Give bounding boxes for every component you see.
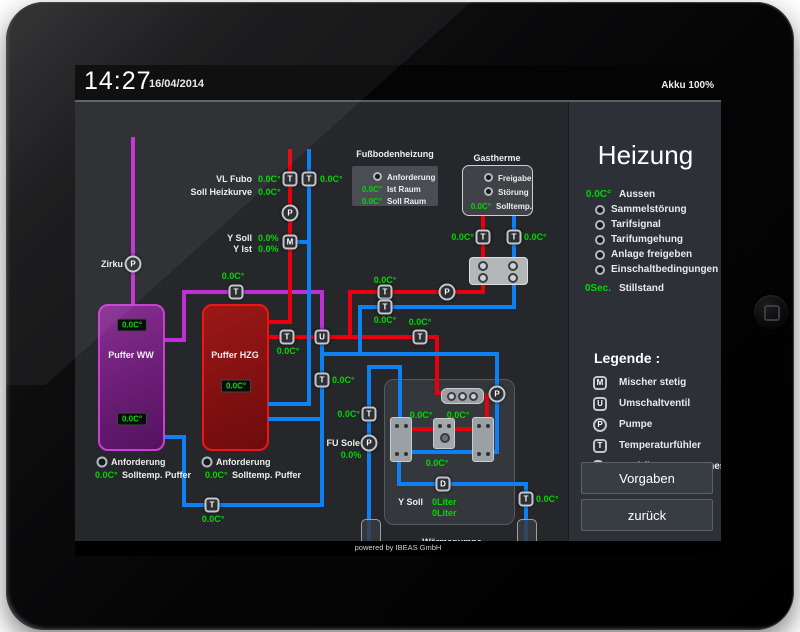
pipe-hzg-lower [268,417,324,421]
value-gastherme-return: 0.0C° [374,315,397,325]
temp-sensor-vl-fubo: T [283,172,298,187]
label-fu-sole: FU Sole [326,438,360,448]
status-led [595,250,605,260]
tank-puffer-hzg [202,304,269,451]
temp-sensor-hzg-out: T [280,330,295,345]
status-value: 0Sec. [581,283,611,294]
label-y-soll-wp: Y Soll [398,497,423,507]
legend-row: TTemperaturfühler [569,435,721,456]
status-led [595,235,605,245]
pipe-hzg-return [268,402,311,406]
status-label: Anlage freigeben [611,249,692,260]
pump-zirku: P [125,256,142,273]
legend-title: Legende : [594,350,660,366]
panel-row: 0.0C°Ist Raum [352,183,438,195]
value-sole: 0.0C° [337,409,360,419]
status-label: Tarifsignal [611,219,661,230]
status-led [595,265,605,275]
label-puffer-ww: Puffer WW [108,350,154,360]
page-title: Heizung [569,140,721,171]
label-anforderung-ww: Anforderung [111,457,166,467]
pipe-sole-top [367,365,402,369]
flow-meter: D [436,477,451,492]
panel-row: Anforderung [352,171,438,183]
pipe-wp-pump-v [495,352,499,454]
temp-sensor-wp-supply: T [413,330,428,345]
status-label: Einschaltbedingungen [611,264,718,275]
label-waermepumpe: Wärmepumpe [422,537,482,541]
label-anforderung-hzg: Anforderung [216,457,271,467]
value-gastherme-supply: 0.0C° [374,275,397,285]
value-wp-hot-2: 0.0C° [447,410,470,420]
battery-status: Akku 100% [661,80,714,91]
value-y-soll-liter-2: 0Liter [432,508,457,518]
value-y-soll-liter-1: 0Liter [432,497,457,507]
panel-row-label: Ist Raum [387,185,421,194]
temp-sensor-ww-line: T [229,285,244,300]
display-ww-top: 0.0C° [117,319,147,332]
status-label: Sammelstörung [611,204,687,215]
indicator-led [484,187,493,196]
display-hzg: 0.0C° [221,380,251,393]
home-button-icon [764,305,780,321]
panel-row: Freigabe [463,171,532,185]
temp-sensor-sole: T [362,407,377,422]
gastherme-panel: FreigabeStörung0.0C°Solltemp. [462,165,533,216]
switch-valve: U [315,330,330,345]
value-y-ist-mixer: 0.0% [258,244,279,254]
compressor-port-icon [447,392,456,401]
legend-symbol-u: U [593,397,607,411]
temp-sensor-gastherme-supply: T [378,285,393,300]
value-valve-line: 0.0C° [332,375,355,385]
status-row: Tarifumgehung [569,232,721,247]
indicator-led [484,173,493,182]
evaporator [390,417,412,462]
pipe-return-top [307,149,311,406]
footer: powered by IBEAS GmbH [75,541,721,556]
pipe-evap-in [398,365,402,422]
value-rl-fubo: 0.0C° [320,174,343,184]
value-schluck: 0.0C° [536,494,559,504]
legend-label: Umschaltventil [619,398,690,409]
label-zirku: Zirku [101,259,123,269]
panel-row: Störung [463,185,532,199]
pipe-sole-main [367,365,371,541]
label-y-ist-mixer: Y Ist [233,244,252,254]
tank-schluck [517,519,537,541]
back-button[interactable]: zurück [581,499,713,531]
label-solltemp-ww: Solltemp. Puffer [122,470,191,480]
temp-sensor-gastherme-cold: T [507,230,522,245]
panel-row: 0.0C°Solltemp. [463,199,532,213]
status-label: Aussen [619,189,655,200]
compressor-port-icon [469,392,478,401]
status-row: 0Sec.Stillstand [569,281,721,296]
legend-symbol-p: P [593,418,607,432]
value-fu-sole: 0.0% [341,450,362,460]
panel-title-gastherme: Gastherme [473,153,520,163]
compressor-port-icon [458,392,467,401]
label-soll-heizkurve: Soll Heizkurve [190,187,252,197]
panel-title-fussbodenheizung: Fußbodenheizung [356,149,433,159]
diagram: Anforderung0.0C°Ist Raum0.0C°Soll Raum F… [75,102,568,541]
status-row: Anlage freigeben [569,247,721,262]
value-gastherme-cold: 0.0C° [524,232,547,242]
tank-saug [361,519,381,541]
value-hzg-out: 0.0C° [277,346,300,356]
sidebar: Heizung 0.0C°AussenSammelstörungTarifsig… [568,102,721,541]
pipe-ww-return-h [165,435,186,439]
temp-sensor-valve-line: T [315,373,330,388]
legend-label: Temperaturfühler [619,440,701,451]
status-value: 0.0C° [581,189,611,200]
status-label: Stillstand [619,283,664,294]
pipe-sole-bottom [397,482,528,486]
status-list: 0.0C°AussenSammelstörungTarifsignalTarif… [569,187,721,296]
pipe-wp-supply [435,335,439,395]
pump-heating-circuit: P [282,205,299,222]
status-row: 0.0C°Aussen [569,187,721,202]
status-row: Sammelstörung [569,202,721,217]
topbar: 14:27 16/04/2014 Akku 100% [75,65,721,101]
panel-row-label: Anforderung [387,173,435,182]
pipe-hzg-in [268,320,292,324]
temp-sensor-gastherme-hot: T [476,230,491,245]
pipe-gastherme-junction [348,290,352,339]
panel-row-label: Störung [498,188,529,197]
pipe-zirku [131,137,135,304]
pipe-gastherme-line [348,290,485,294]
value-wp-cold: 0.0C° [426,458,449,468]
pipe-ww-main [182,290,324,294]
panel-row-label: Solltemp. [496,202,532,211]
legend-label: Pumpe [619,419,652,430]
legend-row: MMischer stetig [569,372,721,393]
fussbodenheizung-rows: Anforderung0.0C°Ist Raum0.0C°Soll Raum [352,166,438,207]
value-wp-supply: 0.0C° [409,317,432,327]
exchanger-port-icon [508,273,518,283]
pump-fu-sole: P [361,435,378,452]
indicator-led [373,172,382,181]
value-vl-fubo: 0.0C° [258,174,281,184]
label-y-soll-mixer: Y Soll [227,233,252,243]
compressor [441,388,484,404]
pipe-bottom-return [182,503,324,507]
display-ww-bottom: 0.0C° [117,413,147,426]
gastherme-rows: FreigabeStörung0.0C°Solltemp. [463,166,532,213]
pipe-mixer-stub [296,240,311,244]
panel-row-label: Freigabe [498,174,531,183]
exchanger-port-icon [478,261,488,271]
value-solltemp-ww: 0.0C° [95,470,118,480]
legend-row: UUmschaltventil [569,393,721,414]
clock: 14:27 [84,67,152,96]
pipe-gastherme-merge [358,305,362,356]
gastherme-heat-exchanger [469,257,528,285]
label-vl-fubo: VL Fubo [216,174,252,184]
status-led [595,220,605,230]
page: 14:27 16/04/2014 Akku 100% [0,0,800,632]
indicator-anforderung-ww [97,457,108,468]
exchanger-port-icon [478,273,488,283]
screen: 14:27 16/04/2014 Akku 100% [75,65,721,556]
fussbodenheizung-panel: Anforderung0.0C°Ist Raum0.0C°Soll Raum [352,166,438,206]
legend-symbol-t: T [593,439,607,453]
label-puffer-hzg: Puffer HZG [211,350,259,360]
value-wp-hot-1: 0.0C° [410,410,433,420]
mixer: M [283,235,298,250]
temp-sensor-schluck: T [519,492,534,507]
status-row: Tarifsignal [569,217,721,232]
condenser [472,417,494,462]
panel-row: 0.0C°Soll Raum [352,195,438,207]
pump-gastherme: P [439,284,456,301]
temp-sensor-rl-fubo: T [302,172,317,187]
pipe-wp-feed [322,352,499,356]
temp-sensor-gastherme-return: T [378,300,393,315]
home-button[interactable] [754,295,788,329]
expansion-valve [433,418,455,449]
pump-waermepumpe: P [489,386,506,403]
value-ww-line: 0.0C° [222,271,245,281]
value-solltemp-hzg: 0.0C° [205,470,228,480]
value-y-soll-mixer: 0.0% [258,233,279,243]
vorgaben-button[interactable]: Vorgaben [581,462,713,494]
exchanger-port-icon [508,261,518,271]
status-row: Einschaltbedingungen [569,262,721,277]
label-solltemp-hzg: Solltemp. Puffer [232,470,301,480]
status-led [595,205,605,215]
legend-label: Mischer stetig [619,377,686,388]
indicator-anforderung-hzg [202,457,213,468]
temp-sensor-bottom-return: T [205,498,220,513]
panel-row-label: Soll Raum [387,197,426,206]
pipe-valve-down [320,335,324,507]
value-gastherme-hot: 0.0C° [451,232,474,242]
legend-row: PPumpe [569,414,721,435]
content: Anforderung0.0C°Ist Raum0.0C°Soll Raum F… [75,102,721,541]
value-bottom-return: 0.0C° [202,514,225,524]
pipe-ww-out-v [182,290,186,342]
legend-symbol-m: M [593,376,607,390]
status-label: Tarifumgehung [611,234,683,245]
value-soll-heizkurve: 0.0C° [258,187,281,197]
date: 16/04/2014 [149,78,204,90]
